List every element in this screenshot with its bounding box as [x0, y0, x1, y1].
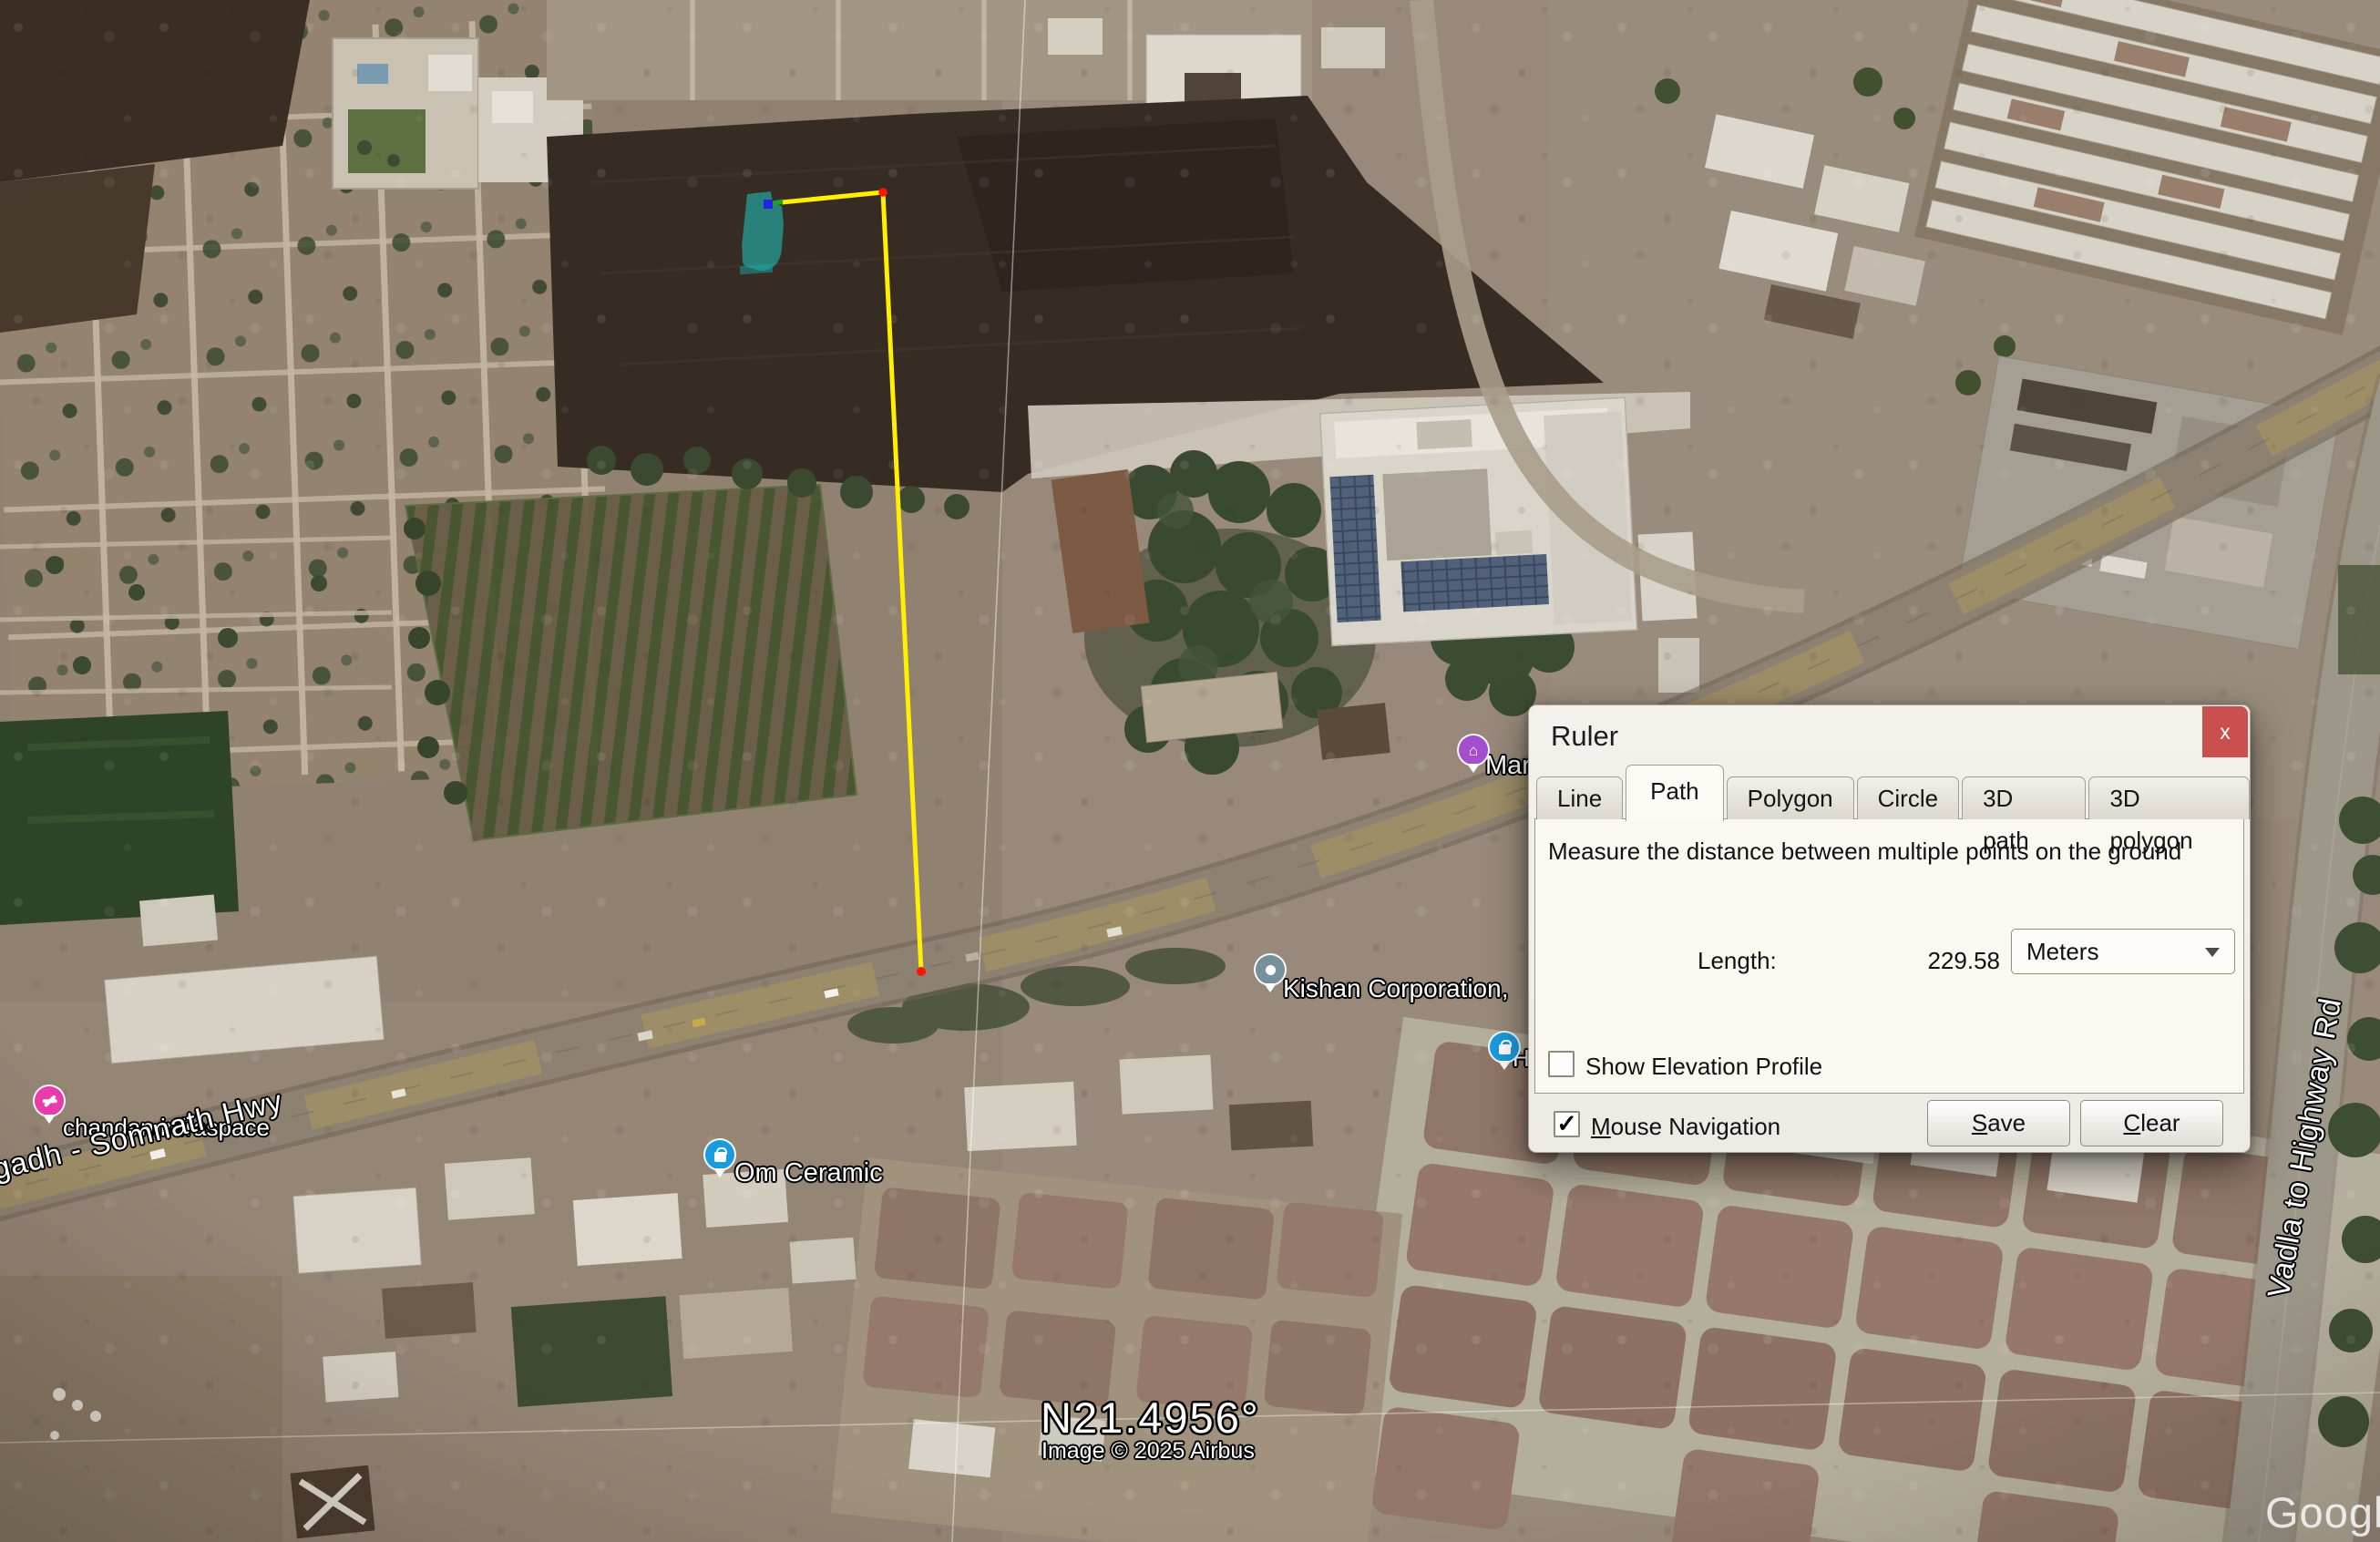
tab-polygon[interactable]: Polygon [1727, 776, 1854, 819]
close-icon: x [2220, 720, 2231, 745]
measure-description: Measure the distance between multiple po… [1548, 838, 2181, 866]
save-button[interactable]: Save [1927, 1100, 2070, 1146]
path-end-point[interactable] [917, 967, 926, 976]
dialog-title: Ruler [1551, 720, 1618, 753]
tab-line[interactable]: Line [1536, 776, 1623, 819]
units-selected-value: Meters [2026, 938, 2098, 966]
tab-3d-polygon[interactable]: 3D polygon [2088, 776, 2250, 819]
ruler-dialog: Ruler x Line Path Polygon Circle 3D path… [1528, 704, 2251, 1153]
path-vertex-point[interactable] [878, 188, 887, 197]
length-value: 229.58 [1809, 947, 2000, 975]
tab-path[interactable]: Path [1626, 765, 1724, 821]
tab-circle[interactable]: Circle [1857, 776, 1959, 819]
units-dropdown[interactable]: Meters [2011, 929, 2235, 974]
clear-button[interactable]: Clear [2080, 1100, 2223, 1146]
ruler-tab-bar: Line Path Polygon Circle 3D path 3D poly… [1536, 765, 2250, 819]
mouse-navigation-checkbox[interactable]: ✓ [1554, 1111, 1580, 1137]
path-start-point[interactable] [764, 200, 773, 209]
show-elevation-label: Show Elevation Profile [1585, 1053, 1822, 1081]
close-button[interactable]: x [2202, 706, 2248, 757]
chevron-down-icon [2205, 948, 2220, 957]
length-label: Length: [1698, 947, 1777, 975]
show-elevation-checkbox[interactable] [1548, 1051, 1575, 1077]
tab-3d-path[interactable]: 3D path [1962, 776, 2086, 819]
google-earth-window: chandan infraspace Om Ceramic Kishan Cor… [0, 0, 2380, 1542]
mouse-navigation-label: Mouse Navigation [1591, 1113, 1780, 1141]
